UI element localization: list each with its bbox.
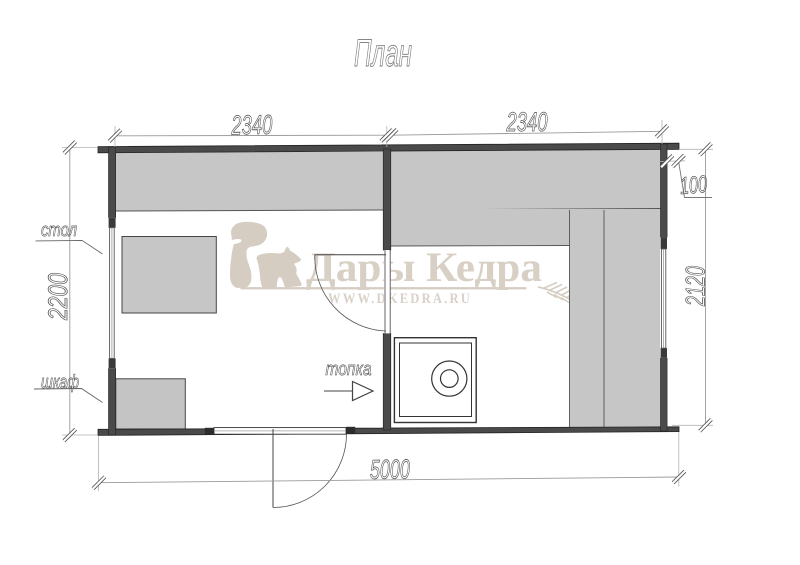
svg-text:2120: 2120 — [681, 266, 711, 307]
svg-text:Дары Кедра: Дары Кедра — [306, 245, 542, 291]
svg-text:2340: 2340 — [230, 110, 272, 141]
svg-text:2200: 2200 — [43, 273, 73, 321]
svg-text:План: План — [354, 32, 412, 75]
svg-text:топка: топка — [326, 359, 372, 380]
svg-text:2340: 2340 — [506, 107, 548, 137]
svg-text:5000: 5000 — [370, 454, 410, 484]
svg-text:шкаф: шкаф — [41, 372, 79, 393]
svg-text:WWW.DKEDRA.RU: WWW.DKEDRA.RU — [328, 291, 472, 307]
svg-text:100: 100 — [679, 171, 708, 200]
svg-text:стол: стол — [41, 220, 77, 241]
